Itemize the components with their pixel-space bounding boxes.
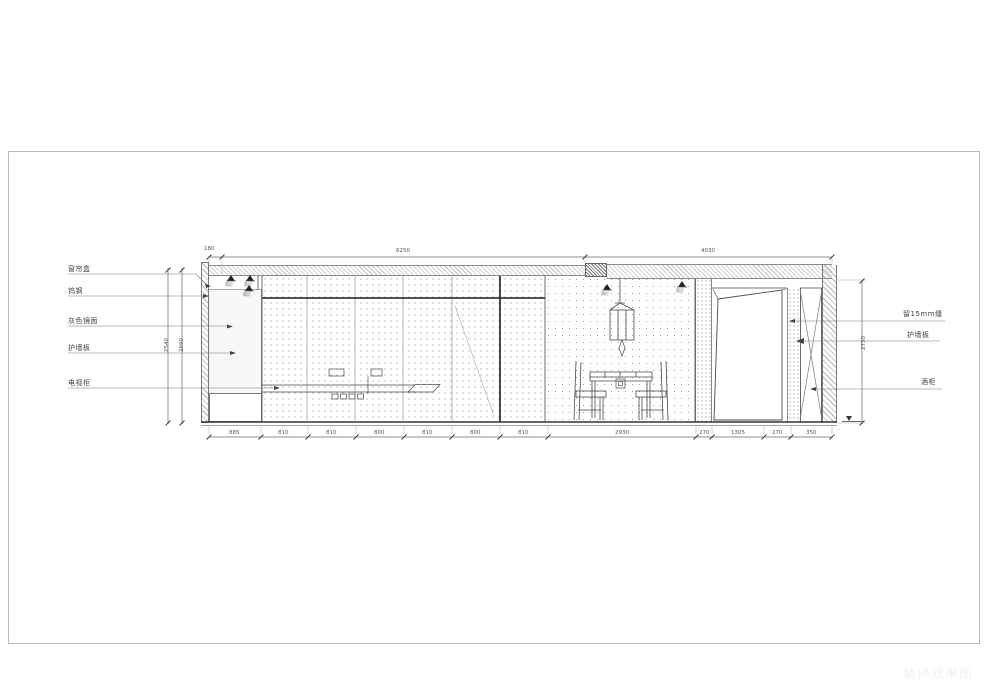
downlight-label-3: 筒灯 [243, 293, 251, 297]
downlight-label-1: 筒灯 [225, 283, 233, 287]
dim-left-outer-2690: 2690 [179, 334, 185, 356]
level-marker-icon [842, 416, 862, 422]
dim-top-4030: 4030 [701, 248, 715, 254]
callout-tv-cabinet: 电视柜 [68, 379, 91, 387]
dim-bottom-6: 800 [470, 430, 481, 436]
dim-bottom-9: 270 [699, 430, 710, 436]
downlight-label-2: 筒灯 [244, 283, 252, 287]
dim-bottom-10: 1305 [731, 430, 745, 436]
dim-bottom-8: 2930 [615, 430, 629, 436]
callout-gap: 留15mm缝 [903, 310, 943, 318]
downlight-label-5: 筒灯 [676, 289, 684, 293]
dim-bottom-12: 350 [806, 430, 817, 436]
dim-bottom-4: 800 [374, 430, 385, 436]
callout-wall-panel-right: 护墙板 [907, 331, 930, 339]
callout-curtain-box: 窗帘盒 [68, 265, 91, 273]
dim-bottom-1: 885 [229, 430, 240, 436]
dim-left-inner-2540: 2540 [164, 334, 170, 356]
callout-wall-panel-left: 护墙板 [68, 344, 91, 352]
downlight-symbols [226, 275, 687, 291]
downlight-label-4: 筒灯 [601, 292, 609, 296]
dim-bottom-5: 810 [422, 430, 433, 436]
dim-bottom-7: 810 [518, 430, 529, 436]
callout-gray-mirror: 灰色镜面 [68, 317, 98, 325]
linework-layer [0, 0, 990, 692]
dim-right-2730: 2730 [861, 332, 867, 354]
watermark-text: 装修效果图 [903, 663, 973, 682]
dim-bottom-3: 810 [326, 430, 337, 436]
callout-metal-trim: 钨钢 [68, 287, 83, 295]
dim-bottom-11: 270 [772, 430, 783, 436]
elevation-drawing-page: { "labels_left": { "curtain_box": "窗帘盒",… [0, 0, 990, 692]
callout-wine-cabinet: 酒柜 [921, 378, 936, 386]
dim-bottom-2: 810 [278, 430, 289, 436]
dim-top-6250: 6250 [396, 248, 410, 254]
dim-top-180: 180 [204, 246, 215, 252]
